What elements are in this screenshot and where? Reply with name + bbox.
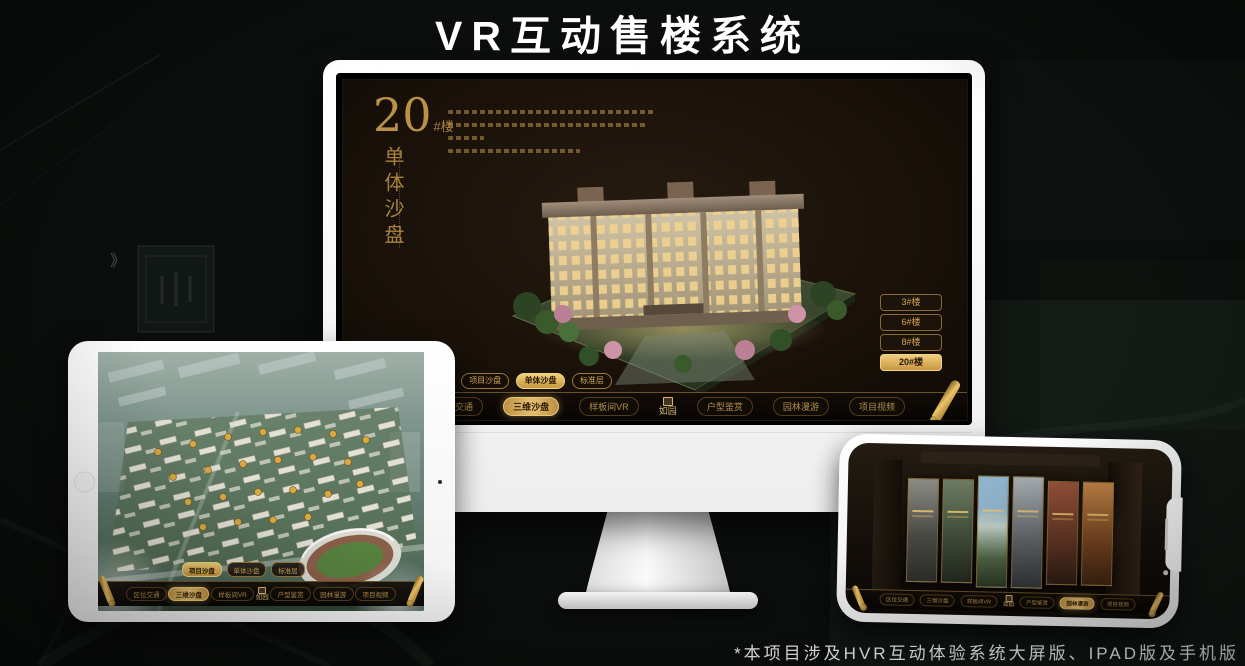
nav-item-project-video[interactable]: 项目视频 (1100, 598, 1135, 611)
nav-item-model-room-vr[interactable]: 样板间VR (579, 397, 639, 415)
tab-standard-floor[interactable]: 标准层 (572, 373, 612, 389)
gallery-panel[interactable] (976, 475, 1009, 588)
interior-column (872, 459, 903, 600)
gallery-panel[interactable] (906, 478, 939, 583)
nav-item-3d-sandtable[interactable]: 三维沙盘 (920, 594, 955, 607)
gallery-panel[interactable] (941, 479, 974, 584)
brand-logo-label: 如园 (256, 595, 269, 602)
nav-item-project-video[interactable]: 项目视频 (849, 397, 905, 415)
phone-screen: 区位交通 三维沙盘 样板间VR 如园 户型鉴赏 园林漫游 项目视频 (845, 443, 1172, 620)
tablet-bottom-nav: 区位交通 三维沙盘 样板间VR 如园 户型鉴赏 园林漫游 项目视频 (98, 581, 424, 606)
nav-item-garden-roam[interactable]: 园林漫游 (1060, 597, 1095, 610)
brand-logo: 如园 (1003, 595, 1014, 608)
floor-button-3[interactable]: 3#楼 (880, 294, 942, 311)
nav-item-garden-roam[interactable]: 园林漫游 (773, 397, 829, 415)
floor-button-20[interactable]: 20#楼 (880, 354, 942, 371)
nav-item-location-traffic[interactable]: 区位交通 (879, 593, 914, 606)
tab-project-sandtable[interactable]: 项目沙盘 (182, 562, 222, 577)
tablet-home-button[interactable] (74, 471, 95, 492)
intro-text-line (448, 136, 484, 140)
gallery-panel[interactable] (1081, 482, 1114, 587)
tab-single-sandtable[interactable]: 单体沙盘 (516, 373, 564, 389)
promo-canvas: 》 VR互动售楼系统 20 #楼 单体沙盘 (0, 0, 1245, 666)
intro-text-line (448, 123, 648, 127)
brand-logo-label: 如园 (1003, 603, 1014, 609)
building-headline: 20 #楼 单体沙盘 (373, 92, 454, 250)
brand-seal-icon (258, 587, 266, 594)
tab-project-sandtable[interactable]: 项目沙盘 (461, 373, 509, 389)
phone-device: 区位交通 三维沙盘 样板间VR 如园 户型鉴赏 园林漫游 项目视频 (836, 433, 1182, 628)
gallery-panel[interactable] (1011, 476, 1044, 589)
nav-item-floorplan-gallery[interactable]: 户型鉴赏 (697, 397, 753, 415)
tab-standard-floor[interactable]: 标准层 (271, 562, 304, 577)
nav-item-model-room-vr[interactable]: 样板间VR (960, 595, 997, 608)
interior-beam (920, 451, 1100, 467)
svg-text:》: 》 (110, 253, 126, 270)
phone-camera-icon (1163, 570, 1168, 575)
nav-item-floorplan-gallery[interactable]: 户型鉴赏 (270, 587, 311, 601)
gallery-panels (906, 474, 1114, 590)
nav-item-garden-roam[interactable]: 园林漫游 (313, 587, 354, 601)
floor-button-group: 3#楼 6#楼 8#楼 20#楼 (880, 294, 942, 374)
building-number: 20 (373, 92, 432, 138)
brand-logo: 如园 (659, 397, 677, 417)
tablet-sub-tabs: 项目沙盘 单体沙盘 标准层 (182, 562, 305, 577)
tablet-screen: 项目沙盘 单体沙盘 标准层 区位交通 三维沙盘 样板间VR 如园 户型鉴赏 园林… (98, 352, 424, 611)
brand-logo-label: 如园 (659, 407, 677, 416)
tablet-device: 项目沙盘 单体沙盘 标准层 区位交通 三维沙盘 样板间VR 如园 户型鉴赏 园林… (68, 341, 455, 622)
brand-logo: 如园 (256, 587, 269, 602)
floor-button-6[interactable]: 6#楼 (880, 314, 942, 331)
tablet-camera-icon (438, 480, 442, 484)
footnote-caption: *本项目涉及HVR互动体验系统大屏版、IPAD版及手机版 (734, 639, 1239, 664)
monitor-stand-neck (585, 508, 731, 596)
page-title: VR互动售楼系统 (0, 2, 1245, 62)
building-model-image[interactable] (493, 144, 873, 394)
floor-button-8[interactable]: 8#楼 (880, 334, 942, 351)
nav-item-project-video[interactable]: 项目视频 (355, 587, 396, 601)
brand-seal-icon (1005, 595, 1012, 602)
nav-item-3d-sandtable[interactable]: 三维沙盘 (503, 397, 559, 415)
monitor-stand-base (558, 592, 758, 609)
headline-vertical-label: 单体沙盘 (379, 146, 408, 250)
nav-item-3d-sandtable[interactable]: 三维沙盘 (168, 587, 209, 601)
headline-english-caption (399, 152, 400, 248)
gallery-panel[interactable] (1046, 481, 1079, 586)
nav-item-floorplan-gallery[interactable]: 户型鉴赏 (1019, 596, 1054, 609)
intro-text-line (448, 110, 656, 114)
brand-seal-icon (663, 397, 673, 406)
tab-single-sandtable[interactable]: 单体沙盘 (227, 562, 267, 577)
nav-item-model-room-vr[interactable]: 样板间VR (211, 587, 255, 601)
nav-item-location-traffic[interactable]: 区位交通 (126, 587, 167, 601)
monitor-sub-tabs: 项目沙盘 单体沙盘 标准层 (461, 373, 612, 389)
